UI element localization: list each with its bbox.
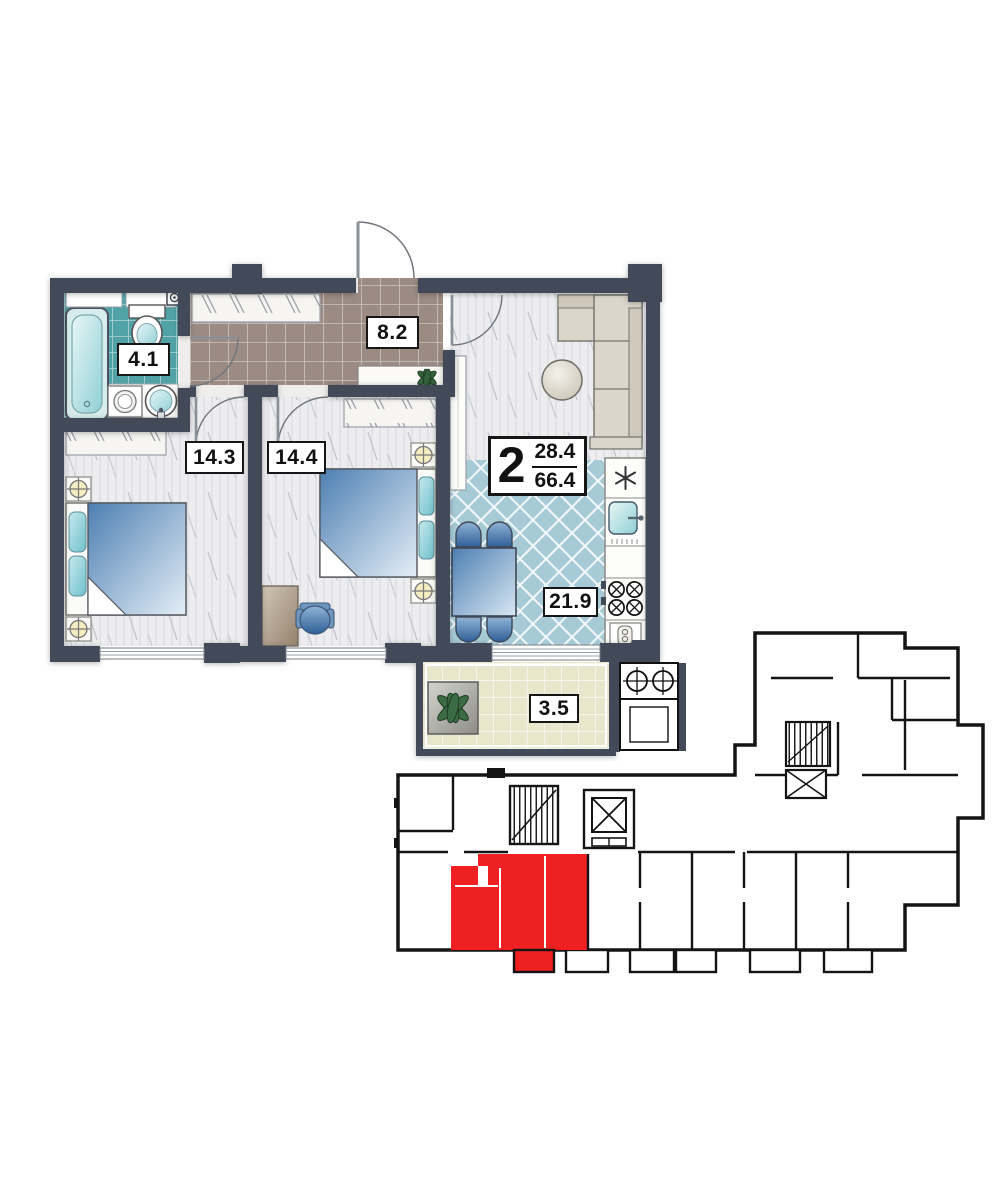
balcony-wall <box>416 749 616 756</box>
room-area-value: 8.2 <box>377 321 408 345</box>
balcony-window <box>492 645 600 660</box>
staircase <box>786 722 830 766</box>
room-area-value: 4.1 <box>128 348 159 372</box>
apartment-total-area: 66.4 <box>532 468 577 493</box>
kitchen-counter <box>601 458 646 650</box>
window <box>100 648 204 659</box>
bed-double <box>66 503 186 615</box>
floor-plan-drawing <box>0 0 1003 1200</box>
room-area-value: 21.9 <box>549 590 592 614</box>
bed-double <box>320 469 436 577</box>
apartment-areas: 28.4 66.4 <box>532 439 577 492</box>
chair <box>456 617 481 642</box>
wardrobe <box>344 399 436 427</box>
entrance-door <box>358 222 414 278</box>
elevator <box>786 770 826 798</box>
window <box>286 648 386 659</box>
room-area-label-balcony: 3.5 <box>529 694 579 723</box>
chair <box>487 522 512 547</box>
coffee-table <box>542 360 582 400</box>
chair <box>487 617 512 642</box>
hall-wardrobe <box>192 294 320 322</box>
desk <box>262 586 298 646</box>
entry-threshold <box>358 278 418 294</box>
room-area-label-bathroom: 4.1 <box>117 343 170 376</box>
room-area-label-bedroom-2: 14.4 <box>267 441 326 474</box>
apartment-rooms-count: 2 <box>498 443 526 488</box>
room-area-label-hallway: 8.2 <box>366 316 419 349</box>
chair <box>456 522 481 547</box>
dining-table <box>452 548 516 616</box>
apartment-living-area: 28.4 <box>532 439 577 467</box>
room-area-value: 3.5 <box>539 697 570 721</box>
floor-plan-page: 4.1 8.2 14.3 14.4 21.9 3.5 2 28.4 66.4 <box>0 0 1003 1200</box>
key-plan-balconies <box>566 950 872 972</box>
bathtub <box>66 308 108 420</box>
balcony <box>423 662 609 749</box>
balcony-plant <box>428 682 478 734</box>
washing-machine <box>108 386 142 417</box>
elevator <box>584 790 634 848</box>
staircase <box>510 786 558 844</box>
apartment-summary-label: 2 28.4 66.4 <box>488 436 587 496</box>
room-area-label-bedroom-1: 14.3 <box>185 441 244 474</box>
room-area-value: 14.4 <box>275 446 318 470</box>
windows <box>100 645 600 660</box>
balcony-wall <box>416 662 423 756</box>
room-area-value: 14.3 <box>193 446 236 470</box>
room-area-label-kitchen: 21.9 <box>543 587 598 617</box>
